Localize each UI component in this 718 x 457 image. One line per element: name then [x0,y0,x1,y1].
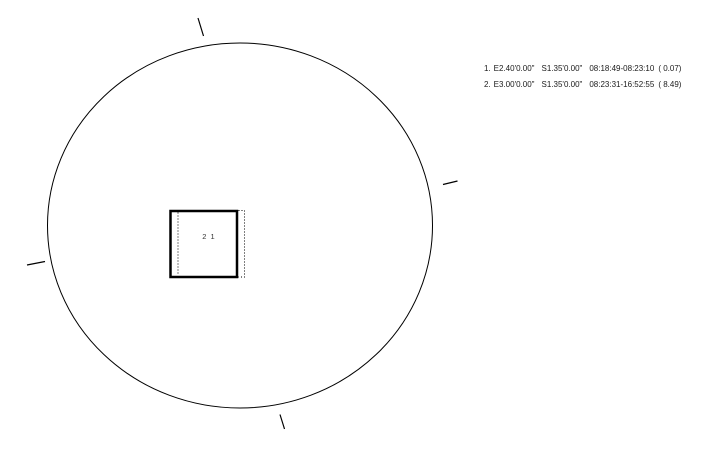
detector-field-rect [171,211,238,277]
tick-mark-right [443,181,458,185]
time-range: 08:18:49-08:23:10 [589,61,654,77]
pointing-entry: 2. E3.00'0.00" S1.35'0.00" 08:23:31-16:5… [484,77,681,93]
pointing-entry: 1. E2.40'0.00" S1.35'0.00" 08:18:49-08:2… [484,61,681,77]
east-coordinate: E2.40'0.00" [494,61,535,77]
time-range: 08:23:31-16:52:55 [589,77,654,93]
entry-index: 1. [484,61,491,77]
tick-mark-bottom [280,415,285,430]
tick-mark-top [198,18,204,36]
duration-hours: ( 8.49) [658,77,681,93]
horizon-ellipse [48,43,433,408]
field-number-label: 2 1 [189,232,229,241]
duration-hours: ( 0.07) [658,61,681,77]
south-coordinate: S1.35'0.00" [542,61,583,77]
fov-plot: 2 1 1. E2.40'0.00" S1.35'0.00" 08:18:49-… [0,0,718,457]
field-overscan-dotted-rect [239,211,245,278]
south-coordinate: S1.35'0.00" [542,77,583,93]
pointing-list: 1. E2.40'0.00" S1.35'0.00" 08:18:49-08:2… [484,61,681,93]
east-coordinate: E3.00'0.00" [494,77,535,93]
tick-mark-left [27,262,45,266]
entry-index: 2. [484,77,491,93]
